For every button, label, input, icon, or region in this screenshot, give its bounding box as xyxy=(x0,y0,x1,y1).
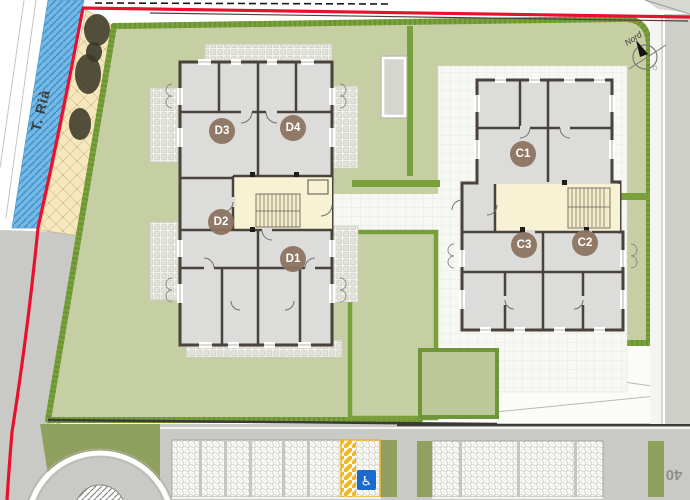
hedge-strip xyxy=(352,180,440,187)
green-verge xyxy=(648,441,664,497)
unit-label-c1: C1 xyxy=(516,148,531,160)
parking-lot-1: ♿ xyxy=(172,440,397,498)
building-c xyxy=(448,80,637,330)
building-d xyxy=(166,62,346,345)
unit-badge-d2: D2 xyxy=(208,209,234,235)
unit-label-c3: C3 xyxy=(517,239,532,251)
green-verge xyxy=(417,441,432,497)
unit-label-d1: D1 xyxy=(286,253,301,265)
unit-label-d3: D3 xyxy=(215,125,230,137)
bush-icon xyxy=(86,42,102,62)
utility-pad xyxy=(381,56,407,118)
site-plan-drawing: D3 D4 D2 D1 C1 C3 C2 xyxy=(0,0,690,500)
site-plan-canvas: D3 D4 D2 D1 C1 C3 C2 xyxy=(0,0,690,500)
accessible-parking-sign: ♿ xyxy=(357,470,376,490)
hedge-strip xyxy=(407,26,413,176)
bush-icon xyxy=(84,14,110,46)
sheet-number: 40 xyxy=(666,466,683,483)
unit-label-c2: C2 xyxy=(578,237,593,249)
unit-badge-c1: C1 xyxy=(510,141,536,167)
unit-badge-d1: D1 xyxy=(280,246,306,272)
unit-badge-d3: D3 xyxy=(209,118,235,144)
green-verge xyxy=(381,440,397,497)
unit-badge-c3: C3 xyxy=(511,232,537,258)
bush-icon xyxy=(69,108,91,140)
unit-label-d2: D2 xyxy=(214,216,229,228)
staircase-c xyxy=(568,188,610,228)
hedged-garden-square xyxy=(420,350,497,417)
no-parking-hatch xyxy=(341,440,356,497)
unit-label-d4: D4 xyxy=(286,122,301,134)
unit-badge-d4: D4 xyxy=(280,115,306,141)
sun-icon: ☼ xyxy=(651,62,659,72)
staircase-d xyxy=(256,194,300,227)
unit-badge-c2: C2 xyxy=(572,230,598,256)
wheelchair-icon: ♿ xyxy=(361,474,373,489)
right-road-strip xyxy=(650,14,690,424)
connecting-path xyxy=(328,194,462,230)
